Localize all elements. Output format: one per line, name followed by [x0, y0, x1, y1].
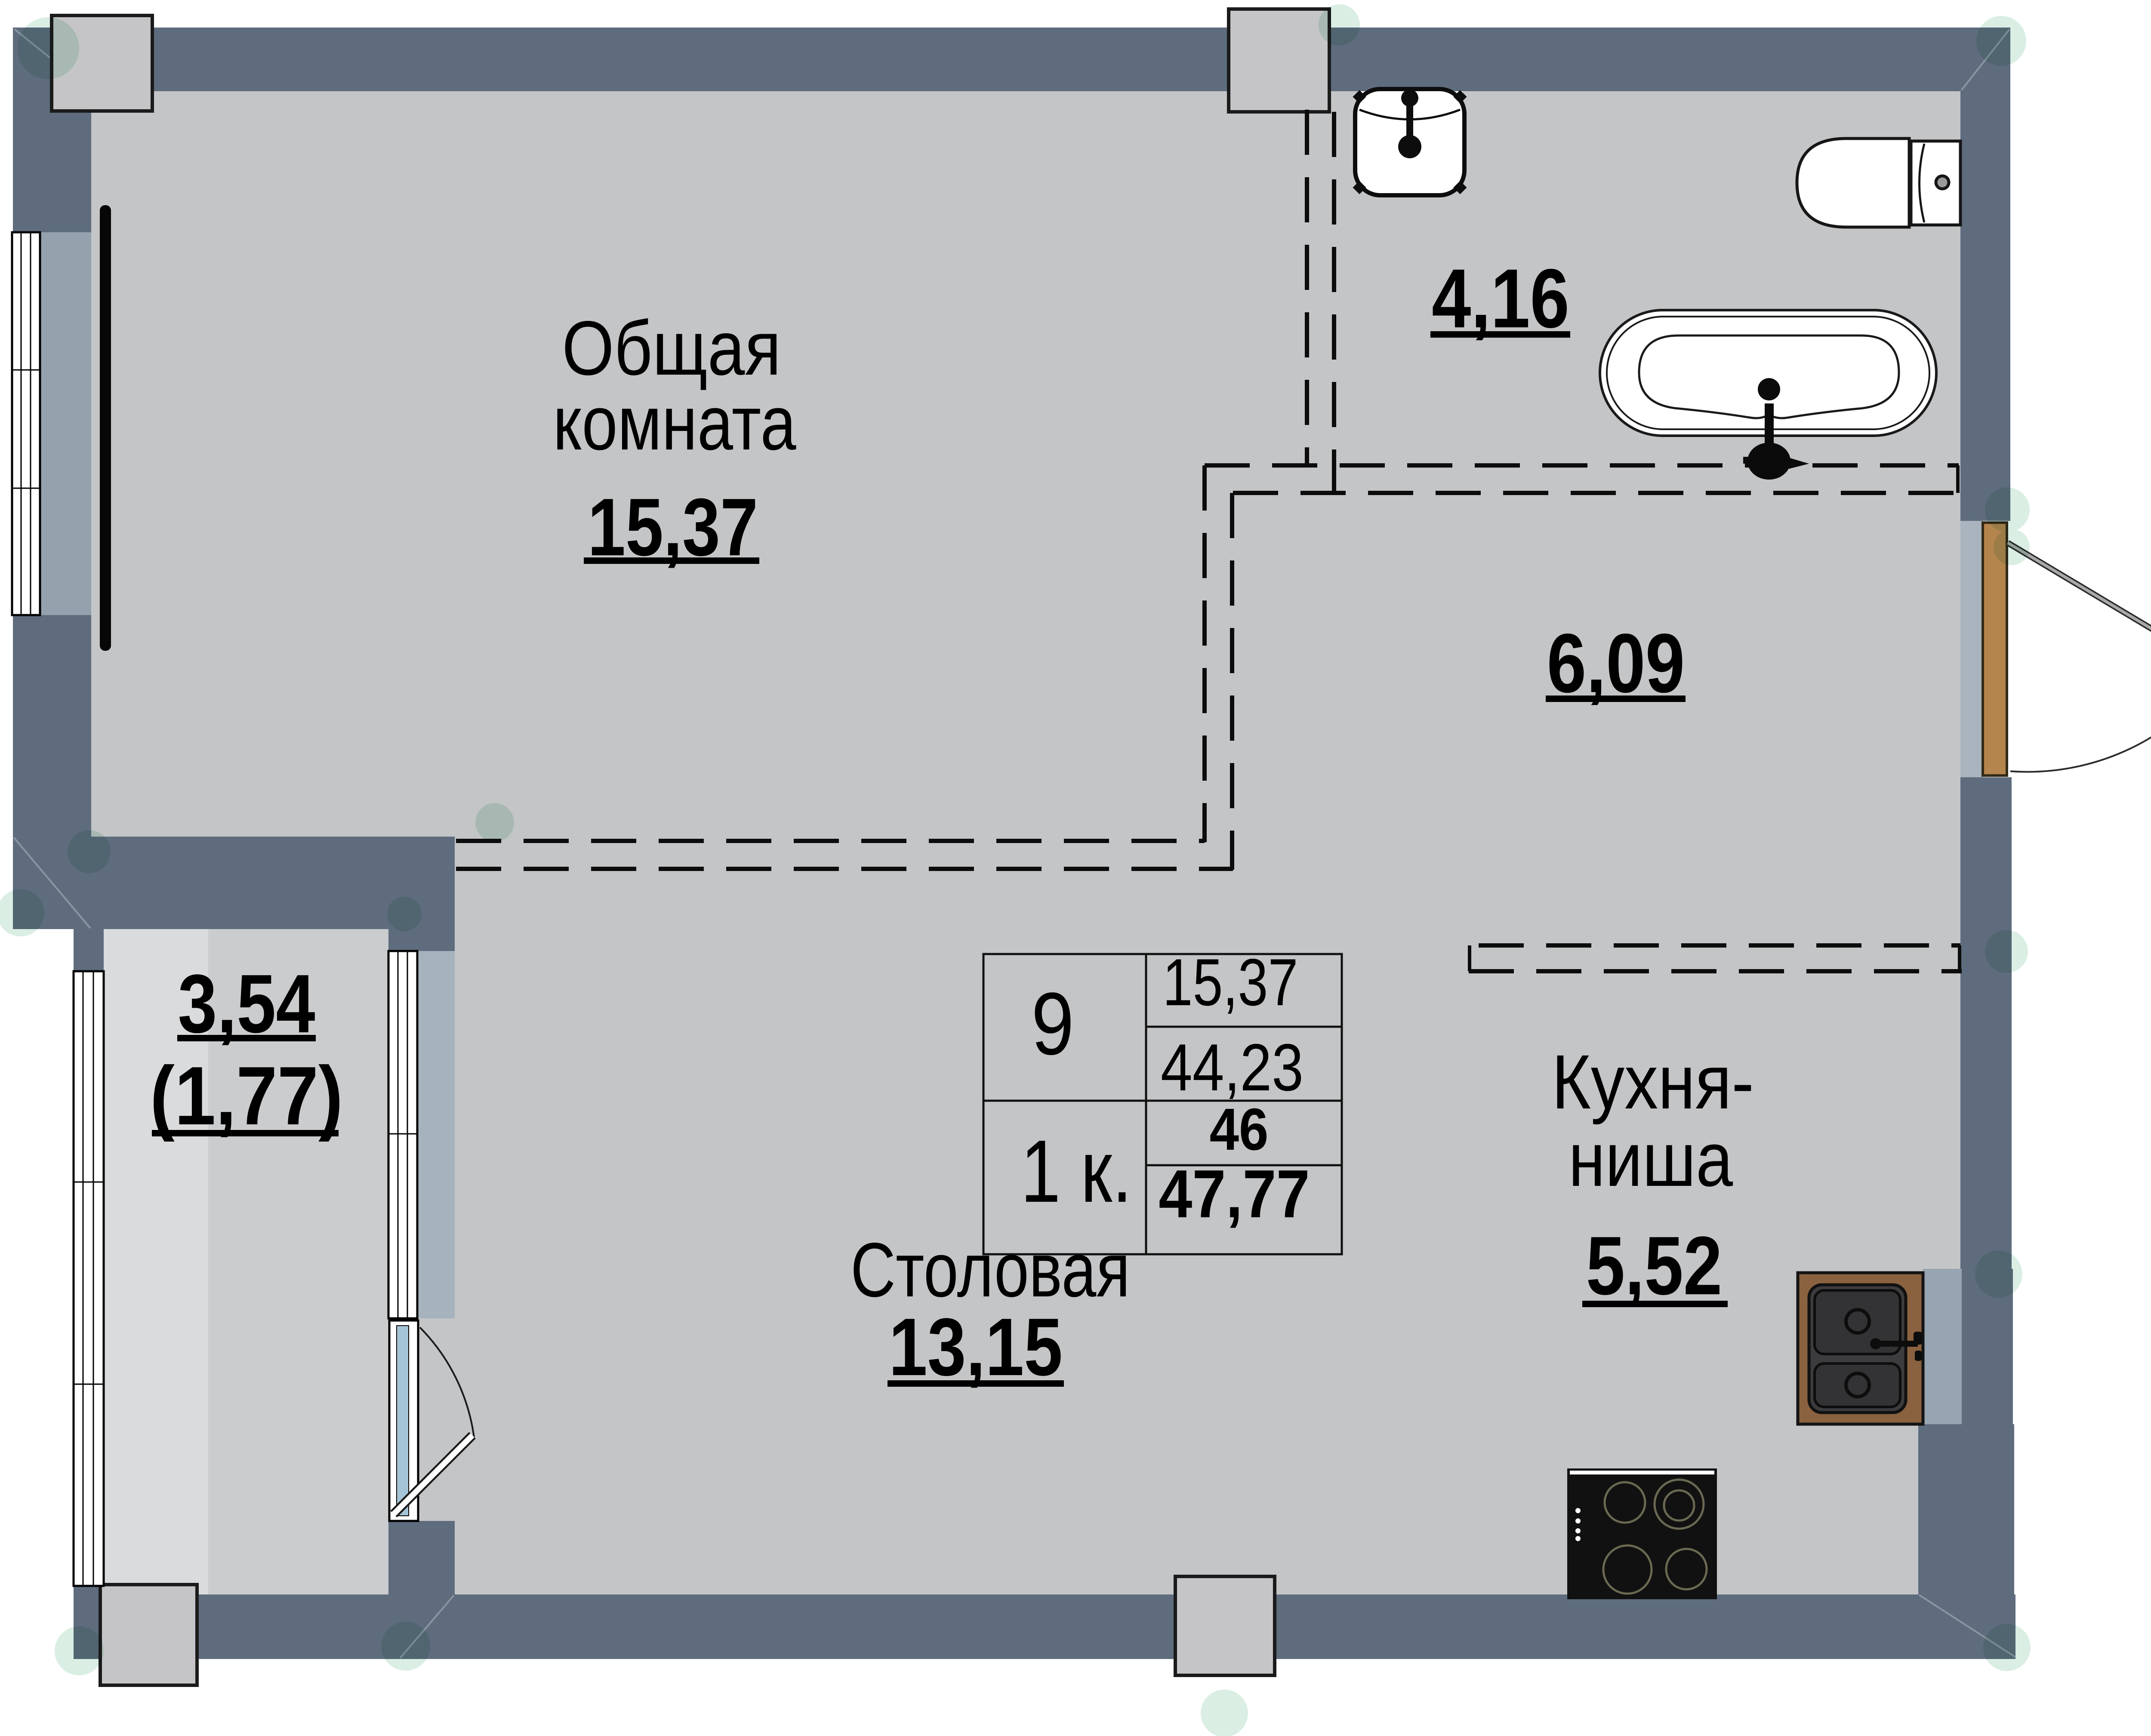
svg-text:44,23: 44,23: [1161, 1030, 1304, 1105]
svg-text:Столовая: Столовая: [851, 1227, 1130, 1313]
svg-text:комната: комната: [553, 380, 796, 466]
svg-text:1 к.: 1 к.: [1020, 1121, 1132, 1221]
svg-text:9: 9: [1031, 974, 1074, 1073]
svg-text:47,77: 47,77: [1159, 1156, 1310, 1232]
svg-text:Общая: Общая: [562, 305, 781, 391]
svg-text:46: 46: [1210, 1096, 1269, 1162]
svg-text:5,52: 5,52: [1586, 1219, 1723, 1312]
svg-text:15,37: 15,37: [1163, 945, 1298, 1019]
svg-text:Кухня-: Кухня-: [1552, 1039, 1754, 1125]
svg-text:ниша: ниша: [1569, 1117, 1733, 1203]
svg-text:(1,77): (1,77): [150, 1050, 343, 1142]
svg-text:13,15: 13,15: [889, 1302, 1063, 1393]
